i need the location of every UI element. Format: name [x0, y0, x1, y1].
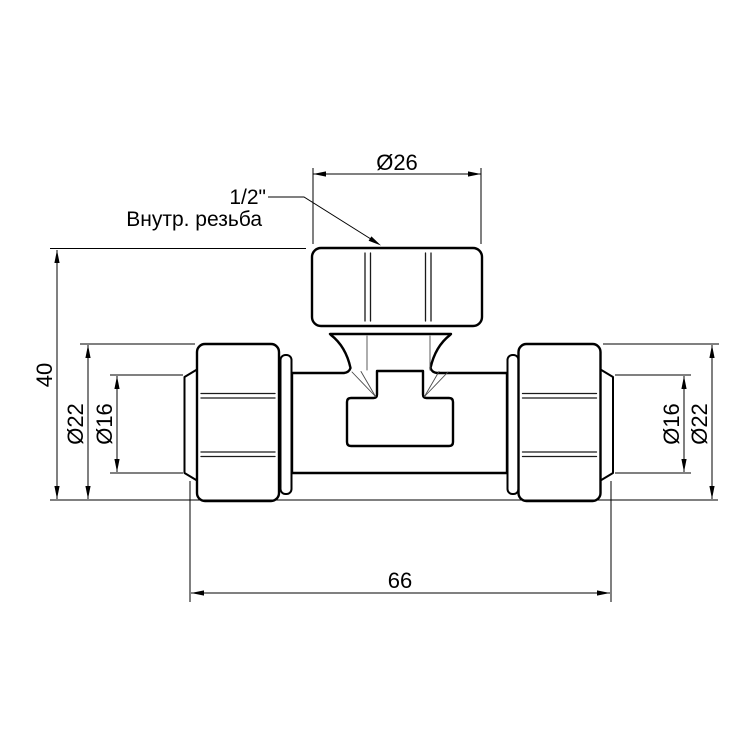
right-compression-ring	[508, 355, 519, 494]
thread-callout: 1/2" Внутр. резьба	[126, 186, 381, 246]
right-end-cap	[601, 370, 614, 481]
dim-left-nut-od: Ø22	[63, 345, 91, 499]
dim-label-height: 40	[32, 363, 57, 387]
dim-label-branch-thread-od: Ø26	[376, 150, 418, 175]
tee-fitting-part	[185, 248, 614, 501]
callout-thread-label: Внутр. резьба	[126, 208, 262, 231]
dim-label-right-pipe-od: Ø16	[659, 403, 684, 445]
dim-label-left-nut-od: Ø22	[63, 403, 88, 445]
callout-leader-arrow	[369, 236, 381, 245]
dim-right-nut-od: Ø22	[687, 345, 715, 499]
drawing-page: Ø26 1/2" Внутр. резьба 40 Ø22	[0, 0, 750, 750]
dim-label-left-pipe-od: Ø16	[92, 403, 117, 445]
top-hex-nut	[312, 248, 482, 326]
dim-branch-thread-od: Ø26	[313, 150, 481, 177]
dim-right-pipe-od: Ø16	[659, 376, 687, 472]
dim-length: 66	[191, 568, 610, 596]
left-hex-nut	[197, 344, 279, 501]
dim-label-length: 66	[388, 568, 412, 593]
left-end-cap	[185, 370, 198, 481]
left-compression-ring	[281, 355, 292, 494]
tee-fitting-technical-drawing: Ø26 1/2" Внутр. резьба 40 Ø22	[0, 0, 750, 750]
callout-size-label: 1/2"	[229, 186, 266, 209]
dim-left-pipe-od: Ø16	[92, 376, 120, 472]
right-hex-nut	[519, 344, 601, 501]
dim-label-right-nut-od: Ø22	[687, 403, 712, 445]
dim-height: 40	[32, 250, 60, 499]
